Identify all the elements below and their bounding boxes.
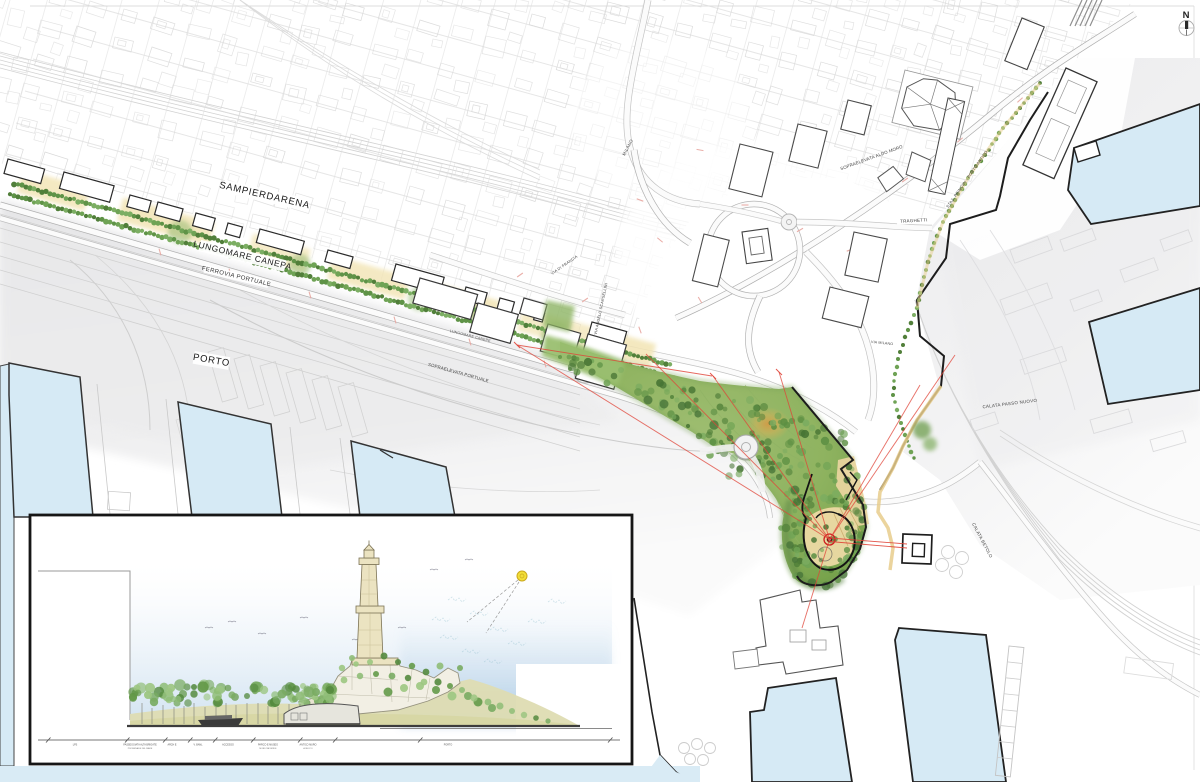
svg-text:PASSEGGIATA ALTA BRIGATE: PASSEGGIATA ALTA BRIGATE (123, 744, 157, 747)
svg-text:N: N (1183, 10, 1190, 21)
svg-text:LPS: LPS (73, 744, 78, 747)
svg-text:MOBILITA VERDE: MOBILITA VERDE (259, 747, 277, 750)
svg-text:A SECCO: A SECCO (303, 747, 313, 750)
svg-text:PORTO: PORTO (444, 744, 453, 747)
svg-text:ACCESSO: ACCESSO (222, 744, 234, 747)
svg-text:PROMENADE DEL MARE: PROMENADE DEL MARE (128, 747, 153, 750)
svg-text:ARCH E: ARCH E (167, 744, 176, 747)
svg-text:PARCO E MUSEO: PARCO E MUSEO (258, 744, 278, 747)
svg-text:V. BANL: V. BANL (194, 744, 204, 747)
svg-text:ANTICO MURO: ANTICO MURO (300, 744, 317, 747)
